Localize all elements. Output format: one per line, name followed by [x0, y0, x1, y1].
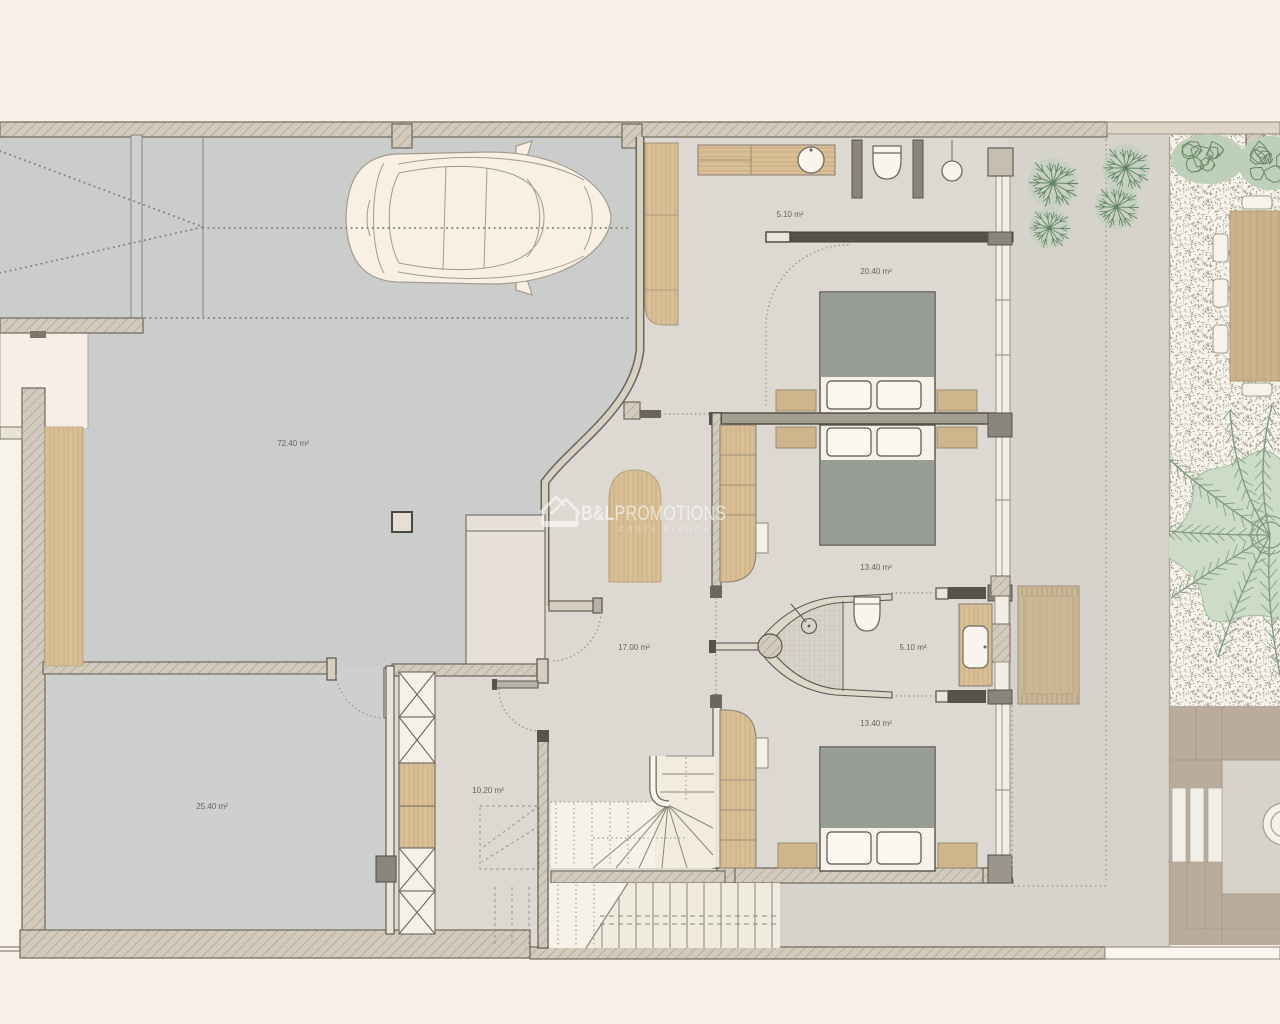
- svg-text:20.40 m²: 20.40 m²: [860, 267, 892, 276]
- svg-text:COSTA BLANCA: COSTA BLANCA: [619, 526, 711, 533]
- svg-text:5.10 m²: 5.10 m²: [776, 210, 803, 219]
- svg-text:13.40 m²: 13.40 m²: [860, 719, 892, 728]
- svg-text:72.40 m²: 72.40 m²: [277, 439, 309, 448]
- svg-text:25.40 m²: 25.40 m²: [196, 802, 228, 811]
- svg-text:10.20 m²: 10.20 m²: [472, 786, 504, 795]
- svg-text:17.00 m²: 17.00 m²: [618, 643, 650, 652]
- svg-text:B&LPROMOTIONS: B&LPROMOTIONS: [581, 502, 726, 526]
- svg-text:13.40 m²: 13.40 m²: [860, 563, 892, 572]
- svg-text:5.10 m²: 5.10 m²: [899, 643, 926, 652]
